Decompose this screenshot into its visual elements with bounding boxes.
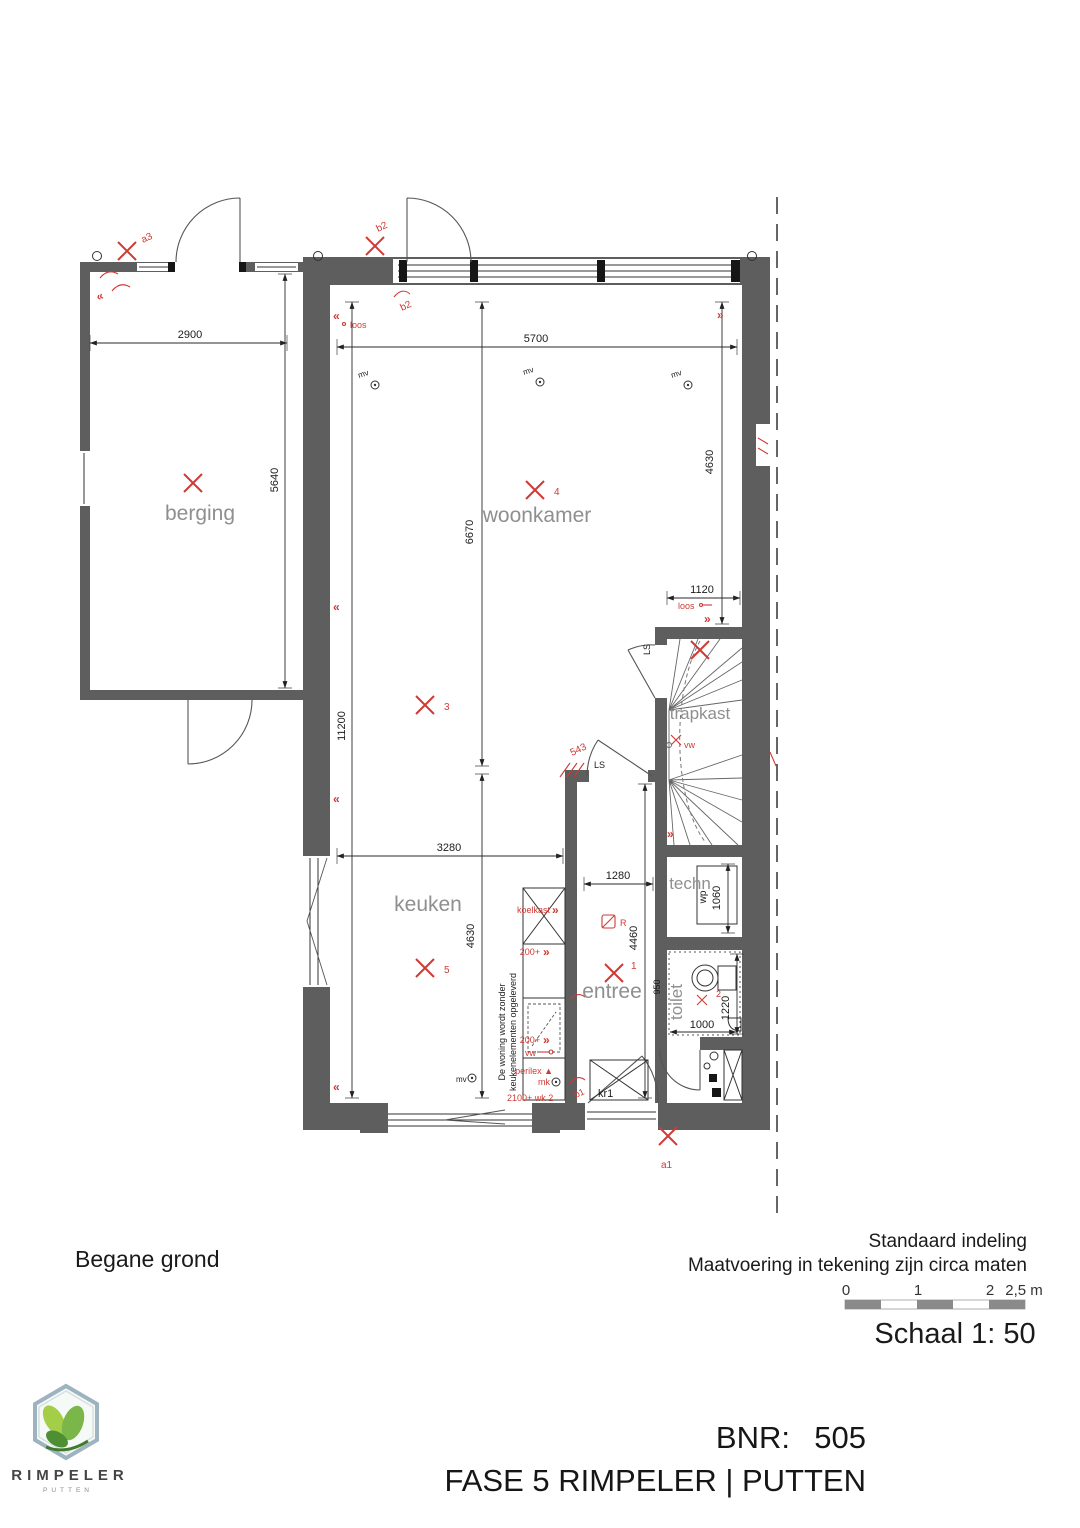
- label-200a: 200+: [520, 947, 540, 957]
- dimensions: 2900 5640 5700 11200 6670 4630 4630 1120…: [90, 274, 744, 1098]
- doors: [176, 198, 700, 1103]
- door-entree-woonkamer: [587, 740, 652, 776]
- dim-entree-width: 1280: [606, 870, 630, 882]
- rimpeler-logo: RIMPELER PUTTEN: [11, 1386, 129, 1494]
- label-mv: mv: [456, 1075, 467, 1084]
- label-loos: loos: [678, 601, 695, 611]
- dim-woonkamer-width: 5700: [524, 333, 548, 345]
- meter-cupboard: [704, 1050, 742, 1100]
- label-2: 2: [716, 989, 721, 999]
- socket-icon: »: [543, 945, 550, 959]
- label-mk: mk: [538, 1077, 550, 1087]
- socket-icon: «: [94, 288, 105, 304]
- dim-entree-height: 4460: [628, 926, 640, 950]
- label-mv: mv: [522, 365, 535, 377]
- floor-plan-drawing: 2900 5640 5700 11200 6670 4630 4630 1120…: [0, 0, 1080, 1528]
- bnr-value: 505: [814, 1420, 866, 1455]
- marker-2: [697, 995, 707, 1005]
- bnr-label: BNR:: [716, 1420, 790, 1455]
- logo-city: PUTTEN: [43, 1487, 93, 1494]
- room-keuken: keuken: [394, 893, 462, 916]
- scale-tick-1: 1: [914, 1282, 922, 1299]
- floorplan-sheet: 2900 5640 5700 11200 6670 4630 4630 1120…: [0, 0, 1080, 1528]
- socket-icon: »: [543, 1033, 550, 1047]
- label-5: 5: [444, 965, 450, 976]
- dim-toilet-width: 1000: [690, 1019, 714, 1031]
- socket-icon: «: [333, 1080, 340, 1094]
- label-perilex: perilex ▲: [515, 1066, 553, 1076]
- floor-label: Begane grond: [75, 1246, 220, 1272]
- room-techn: techn: [669, 874, 711, 893]
- marker-a3: [118, 242, 136, 260]
- scale-tick-2: 2: [986, 1282, 994, 1299]
- marker-berging: [184, 474, 202, 492]
- dim-woonkamer-height: 6670: [464, 520, 476, 544]
- socket-icon: »: [717, 308, 724, 322]
- dim-woonkamer-right: 4630: [704, 450, 716, 474]
- socket-icon: «: [333, 792, 340, 806]
- label-a1: a1: [661, 1160, 673, 1171]
- kitchen-note-line2: keukenelementen opgeleverd: [508, 973, 518, 1091]
- label-kr1: kr1: [598, 1088, 613, 1100]
- label-b2: b2: [375, 220, 390, 235]
- room-toilet: toilet: [667, 984, 686, 1020]
- label-b2-door: b2: [399, 299, 414, 314]
- label-loos: loos: [350, 320, 367, 330]
- dim-keuken-height: 4630: [465, 924, 477, 948]
- room-labels: berging woonkamer keuken entree trapkast…: [165, 502, 731, 1100]
- marker-4: [526, 481, 544, 499]
- label-koelkast: koelkast: [517, 905, 551, 915]
- label-mv: mv: [670, 368, 683, 380]
- label-200b: 200+: [520, 1035, 540, 1045]
- note-standaard: Standaard indeling: [869, 1231, 1027, 1252]
- logo-name: RIMPELER: [11, 1467, 129, 1484]
- label-3: 3: [444, 702, 450, 713]
- marker-3: [416, 696, 434, 714]
- label-smoke-detector: R: [620, 918, 627, 928]
- label-wk: 2100+ wk 2: [507, 1093, 553, 1103]
- label-vw-stair: vw: [684, 740, 696, 750]
- label-ls: LS: [642, 644, 652, 655]
- marker-vw-stair: [671, 735, 681, 745]
- marker-5: [416, 959, 434, 977]
- dim-berging-width: 2900: [178, 329, 202, 341]
- label-4: 4: [554, 487, 560, 498]
- scale-tick-25: 2,5 m: [1005, 1282, 1043, 1299]
- label-a3: a3: [140, 231, 155, 246]
- ventilation-points: mv mv mv mv: [357, 365, 692, 1084]
- dim-keuken-width: 3280: [437, 842, 461, 854]
- room-berging: berging: [165, 502, 235, 525]
- dim-techn-depth: 1060: [711, 886, 723, 910]
- label-543: 543: [569, 742, 589, 759]
- label-wp: wp: [698, 890, 709, 904]
- scale-bar: 0 1 2 2,5 m: [842, 1282, 1043, 1309]
- socket-icon: «: [333, 309, 340, 323]
- note-maatvoering: Maatvoering in tekening zijn circa maten: [688, 1255, 1027, 1276]
- label-vw-kitchen: vw: [525, 1048, 537, 1058]
- door-berging-top: [176, 198, 240, 262]
- door-woonkamer-top: [407, 198, 471, 262]
- scale-label: Schaal 1: 50: [874, 1318, 1035, 1350]
- room-trapkast: trapkast: [670, 704, 731, 723]
- pipe-circle: [93, 252, 102, 261]
- socket-icon: »: [667, 827, 674, 841]
- label-mv: mv: [357, 368, 370, 380]
- dim-house-depth: 11200: [336, 711, 348, 741]
- label-ls: LS: [594, 760, 605, 770]
- dim-toilet-w2: 950: [652, 979, 662, 994]
- marker-b2: [366, 237, 384, 255]
- socket-icon: »: [552, 903, 559, 917]
- title-block: Begane grond Standaard indeling Maatvoer…: [75, 1231, 1043, 1498]
- dim-trapkast-width: 1120: [690, 584, 714, 596]
- dim-berging-depth: 5640: [269, 468, 281, 492]
- project-title: FASE 5 RIMPELER | PUTTEN: [445, 1463, 866, 1498]
- scale-tick-0: 0: [842, 1282, 850, 1299]
- socket-icon: «: [333, 600, 340, 614]
- room-woonkamer: woonkamer: [482, 504, 592, 527]
- door-berging-bottom: [188, 700, 252, 764]
- dim-toilet-depth: 1220: [720, 996, 732, 1020]
- kitchen-note-line1: De woning wordt zonder: [497, 983, 507, 1080]
- room-entree: entree: [582, 980, 642, 1003]
- label-1: 1: [631, 961, 637, 972]
- socket-icon: »: [704, 612, 711, 626]
